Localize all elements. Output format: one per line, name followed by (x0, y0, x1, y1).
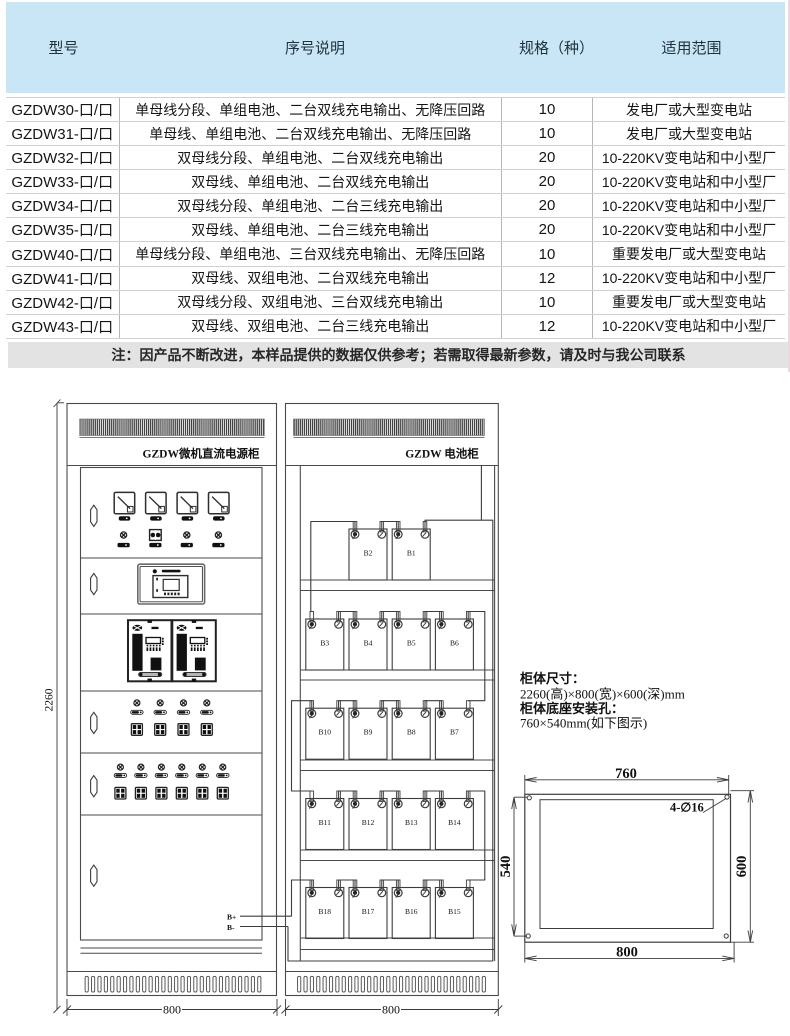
svg-text:B11: B11 (319, 818, 331, 827)
svg-text:B17: B17 (362, 907, 375, 916)
svg-text:B5: B5 (407, 639, 416, 648)
svg-text:540: 540 (498, 856, 514, 878)
svg-text:B12: B12 (362, 818, 375, 827)
svg-text:B+: B+ (227, 913, 236, 922)
svg-text:600: 600 (734, 856, 750, 878)
svg-text:B3: B3 (320, 639, 329, 648)
svg-text:B4: B4 (364, 639, 373, 648)
svg-text:4-∅16: 4-∅16 (670, 801, 704, 815)
svg-text:B10: B10 (319, 728, 332, 737)
svg-text:B18: B18 (319, 907, 332, 916)
svg-text:B9: B9 (364, 728, 373, 737)
svg-text:2260(高)×800(宽)×600(深)mm: 2260(高)×800(宽)×600(深)mm (520, 687, 685, 702)
svg-text:B6: B6 (450, 639, 459, 648)
svg-text:GZDW微机直流电源柜: GZDW微机直流电源柜 (143, 447, 260, 461)
svg-text:800: 800 (616, 945, 638, 961)
svg-text:柜体底座安装孔：: 柜体底座安装孔： (519, 701, 624, 716)
svg-text:B14: B14 (448, 818, 461, 827)
svg-text:B2: B2 (364, 549, 373, 558)
svg-text:B13: B13 (405, 818, 418, 827)
svg-text:B-: B- (227, 923, 235, 932)
svg-text:GZDW 电池柜: GZDW 电池柜 (405, 447, 479, 461)
svg-text:B15: B15 (448, 907, 461, 916)
svg-text:柜体尺寸：: 柜体尺寸： (519, 671, 585, 686)
svg-text:760×540mm(如下图示): 760×540mm(如下图示) (520, 716, 647, 731)
svg-text:B1: B1 (407, 549, 416, 558)
svg-text:B7: B7 (450, 728, 459, 737)
svg-text:2260: 2260 (44, 688, 56, 711)
svg-text:760: 760 (615, 766, 637, 782)
svg-text:B16: B16 (405, 907, 418, 916)
svg-text:800: 800 (163, 1003, 181, 1017)
svg-text:800: 800 (382, 1003, 400, 1017)
svg-text:B8: B8 (407, 728, 416, 737)
